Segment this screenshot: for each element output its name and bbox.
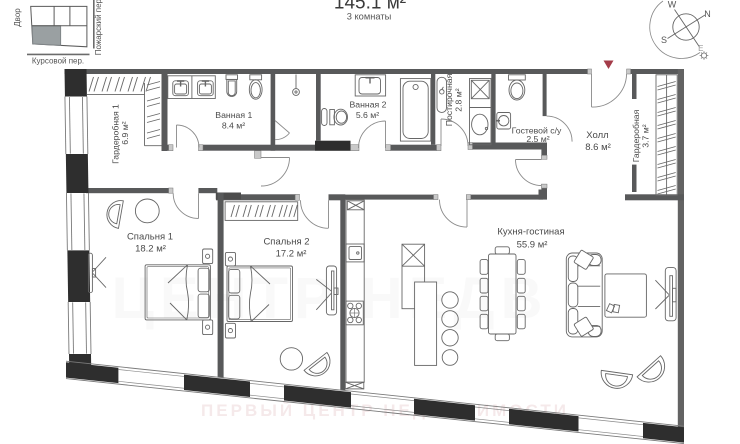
svg-text:S: S [661,35,667,45]
svg-text:Спальня 2: Спальня 2 [263,237,309,248]
svg-text:55.9 м²: 55.9 м² [517,240,548,251]
svg-text:Кухня-гостиная: Кухня-гостиная [497,227,564,238]
svg-text:Пожарский пер.: Пожарский пер. [94,0,103,55]
svg-text:5.6 м²: 5.6 м² [356,110,379,120]
svg-text:W: W [668,0,677,10]
svg-text:3 комнаты: 3 комнаты [347,11,392,21]
svg-text:8.4 м²: 8.4 м² [222,121,245,131]
svg-text:6.9 м²: 6.9 м² [120,121,130,144]
svg-text:8.6 м²: 8.6 м² [585,142,611,153]
svg-text:18.2 м²: 18.2 м² [135,244,166,255]
svg-text:Двор: Двор [13,8,22,27]
svg-text:Курсовой пер.: Курсовой пер. [32,57,84,66]
svg-text:E: E [698,44,703,53]
svg-text:ЦЕНТР НЕДВ: ЦЕНТР НЕДВ [112,266,549,331]
svg-text:Ванная 1: Ванная 1 [215,110,252,120]
svg-text:Спальня 1: Спальня 1 [127,232,173,243]
svg-text:Ванная 2: Ванная 2 [349,100,386,110]
svg-text:N: N [704,9,711,19]
svg-text:Гардеробная 1: Гардеробная 1 [111,104,121,164]
svg-text:Гардеробная: Гардеробная [631,109,641,162]
svg-text:2.8 м²: 2.8 м² [454,88,464,111]
svg-text:3.7 м²: 3.7 м² [641,124,651,147]
svg-text:Постирочная: Постирочная [444,73,454,126]
svg-text:2.5 м²: 2.5 м² [526,134,549,144]
svg-text:Холл: Холл [586,130,608,141]
svg-text:17.2 м²: 17.2 м² [276,249,307,260]
